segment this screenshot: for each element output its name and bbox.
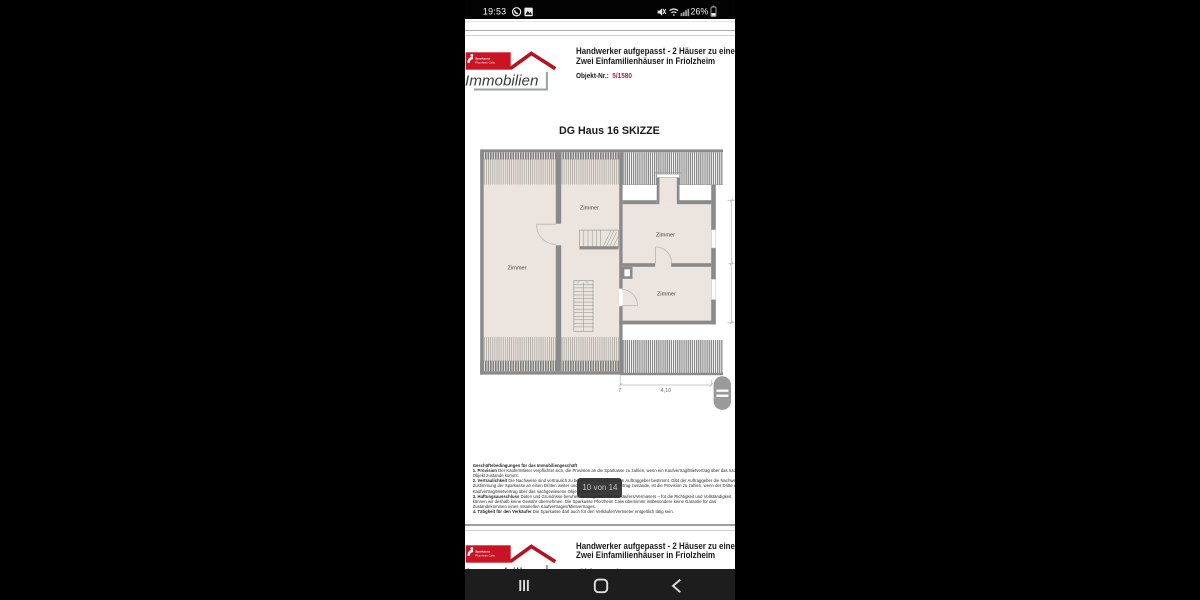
svg-text:Zimmer: Zimmer bbox=[580, 206, 599, 212]
svg-text:Pforzheim Calw: Pforzheim Calw bbox=[475, 553, 496, 557]
svg-text:Zimmer: Zimmer bbox=[508, 265, 527, 271]
svg-text:4,10: 4,10 bbox=[661, 388, 672, 394]
svg-text:7: 7 bbox=[618, 388, 621, 394]
svg-text:Zimmer: Zimmer bbox=[656, 233, 675, 239]
svg-text:Zimmer: Zimmer bbox=[657, 292, 676, 298]
